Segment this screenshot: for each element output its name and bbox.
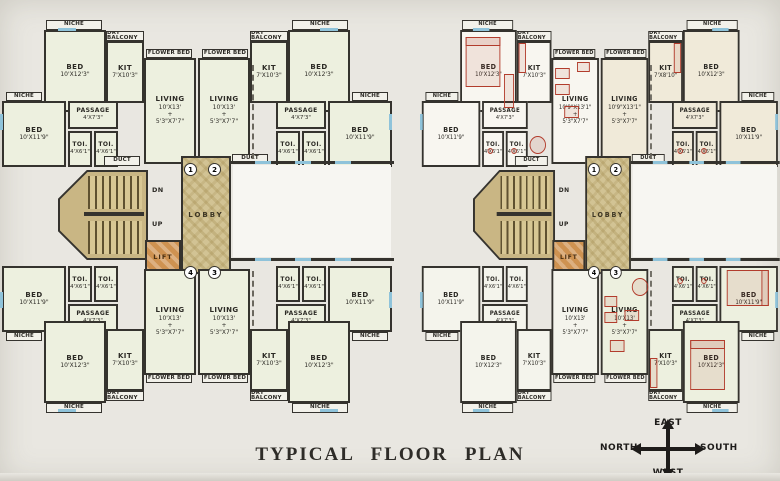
window-marker xyxy=(712,409,728,412)
flat-door-number: 2 xyxy=(610,163,622,176)
kitchen-dashed-partition xyxy=(650,65,652,159)
window-marker xyxy=(320,409,338,412)
kitchen: KIT7'X10'3" xyxy=(250,329,288,391)
living-room: LIVING10'X13' + 5'3"X7'7" xyxy=(551,269,598,375)
dining-table-furniture xyxy=(530,136,546,154)
staircase xyxy=(473,170,555,260)
window-marker xyxy=(0,292,3,308)
flat-door-number: 2 xyxy=(208,163,221,176)
flat-door-number: 3 xyxy=(208,266,221,279)
compass-arrow-east-icon xyxy=(695,443,705,455)
window-marker xyxy=(295,258,311,261)
flower-bed-strip: FLOWER BED xyxy=(604,374,646,383)
kitchen-platform xyxy=(650,358,657,388)
dining-table-furniture xyxy=(632,278,648,296)
dry-balcony-strip: DRY BALCONY xyxy=(517,391,552,401)
stair-up-label: UP xyxy=(152,220,163,228)
toilet: TOI.4'X6'1" xyxy=(506,266,528,302)
compass-south-label: SOUTH xyxy=(700,443,744,453)
toilet-fixture xyxy=(701,148,706,154)
passage: PASSAGE4'X7'3" xyxy=(68,101,118,129)
stair-flight-down xyxy=(88,176,142,209)
toilet: TOI.4'X6'1" xyxy=(302,266,326,302)
stair-up-label: UP xyxy=(559,220,569,228)
passage: PASSAGE4'X7'3" xyxy=(672,101,718,129)
living-room: LIVING10'X13' + 5'3"X7'7" xyxy=(144,269,196,375)
niche-strip: NICHE xyxy=(6,92,42,101)
window-marker xyxy=(473,409,489,412)
niche-strip: NICHE xyxy=(741,92,774,101)
bedroom: BED10'X12'3" xyxy=(683,30,740,112)
flower-bed-strip: FLOWER BED xyxy=(146,374,192,383)
compass: EAST NORTH SOUTH WEST xyxy=(600,416,770,478)
bedroom: BED10'X11'9" xyxy=(719,101,777,167)
left-wing: NICHE BED10'X12'3" DRY BALCONY KIT7'X10'… xyxy=(0,10,394,424)
toilet-fixture xyxy=(701,278,706,284)
window-marker xyxy=(58,28,76,31)
sofa-furniture xyxy=(604,296,617,307)
niche-strip: NICHE xyxy=(352,92,388,101)
kitchen: KIT7'X10'3" xyxy=(250,41,288,103)
kitchen: KIT7'X10'3" xyxy=(106,329,144,391)
bedroom: BED10'X11'9" xyxy=(328,101,392,167)
compass-arrow-west-icon xyxy=(631,443,641,455)
compass-arrow-north-icon xyxy=(662,419,674,429)
toilet: TOI.4'X6'1" xyxy=(482,131,504,167)
dry-balcony-strip: DRY BALCONY xyxy=(517,31,552,41)
window-marker xyxy=(420,114,423,130)
stair-flight-down xyxy=(500,176,549,209)
right-wing: NICHE BED10'X12'3" DRY BALCONY KIT7'X10'… xyxy=(420,10,780,424)
window-marker xyxy=(335,258,351,261)
toilet-fixture xyxy=(677,278,682,284)
flower-bed-strip: FLOWER BED xyxy=(553,374,595,383)
bedroom: BED10'X11'9" xyxy=(422,101,480,167)
toilet-fixture xyxy=(511,148,516,154)
bedroom: BED10'X12'3" xyxy=(460,321,517,403)
toilet: TOI.4'X6'1" xyxy=(482,266,504,302)
sofa-furniture xyxy=(555,84,570,95)
coffee-table-furniture xyxy=(564,106,579,118)
stair-dn-label: DN xyxy=(559,186,570,194)
window-marker xyxy=(653,161,668,164)
window-marker xyxy=(320,28,338,31)
stair-landing-divider xyxy=(84,212,144,216)
kitchen: KIT7'X10'3" xyxy=(517,329,552,391)
stair-flight-up xyxy=(88,221,142,254)
toilet: TOI.4'X6'1" xyxy=(94,266,118,302)
toilet-fixture xyxy=(677,148,682,154)
living-room: LIVING10'9"X13'1" + 5'3"X7'7" xyxy=(601,58,648,164)
bedroom: BED10'X12'3" xyxy=(44,321,106,403)
flower-bed-strip: FLOWER BED xyxy=(553,49,595,58)
bedroom: BED10'X12'3" xyxy=(44,30,106,112)
bed-pillow-furniture xyxy=(761,270,768,306)
flat-door-number: 3 xyxy=(610,266,622,279)
window-marker xyxy=(389,114,392,130)
floor-plan: NICHE BED10'X12'3" DRY BALCONY KIT7'X10'… xyxy=(0,0,780,481)
flat-door-number: 4 xyxy=(184,266,197,279)
niche-strip: NICHE xyxy=(425,92,458,101)
duct: DUCT xyxy=(104,156,140,166)
window-marker xyxy=(295,161,311,164)
kitchen-dashed-partition xyxy=(252,65,254,159)
window-marker xyxy=(689,258,704,261)
staircase xyxy=(58,170,148,260)
toilet-fixture xyxy=(488,148,493,154)
kitchen: KIT7'X10'3" xyxy=(106,41,144,103)
flat-door-number: 4 xyxy=(588,266,600,279)
toilet: TOI.4'X6'1" xyxy=(68,266,92,302)
wardrobe-furniture xyxy=(504,74,514,108)
bed-pillow-furniture xyxy=(690,340,725,349)
flat-door-number: 1 xyxy=(588,163,600,176)
bed-pillow-furniture xyxy=(466,37,501,46)
stair-dn-label: DN xyxy=(152,186,164,194)
window-marker xyxy=(0,114,3,130)
dry-balcony-strip: DRY BALCONY xyxy=(250,31,288,41)
toilet: TOI.4'X6'1" xyxy=(672,266,694,302)
living-room: LIVING10'X13' + 5'3"X7'7" xyxy=(198,269,250,375)
dry-balcony-strip: DRY BALCONY xyxy=(648,31,683,41)
stair-flight-up xyxy=(500,221,549,254)
flower-bed-strip: FLOWER BED xyxy=(202,49,248,58)
window-marker xyxy=(255,258,271,261)
toilet: TOI.4'X6'1" xyxy=(68,131,92,167)
window-marker xyxy=(420,292,423,308)
passage: PASSAGE4'X7'3" xyxy=(276,101,326,129)
window-marker xyxy=(775,292,778,308)
bedroom: BED10'X11'9" xyxy=(2,101,66,167)
stair-landing-divider xyxy=(497,212,552,216)
sofa-furniture xyxy=(625,310,640,321)
window-marker xyxy=(726,258,741,261)
window-marker xyxy=(58,409,76,412)
window-marker xyxy=(335,161,351,164)
sofa-furniture xyxy=(604,312,617,323)
niche-strip: NICHE xyxy=(352,332,388,341)
compass-north-label: NORTH xyxy=(600,443,632,453)
kitchen-platform xyxy=(519,43,526,73)
window-marker xyxy=(726,161,741,164)
window-marker xyxy=(712,28,728,31)
dry-balcony-strip: DRY BALCONY xyxy=(250,391,288,401)
niche-strip: NICHE xyxy=(425,332,458,341)
flat-door-number: 1 xyxy=(184,163,197,176)
living-room: LIVING10'X13' + 5'3"X7'7" xyxy=(198,58,250,164)
niche-strip: NICHE xyxy=(741,332,774,341)
niche-strip: NICHE xyxy=(6,332,42,341)
toilet: TOI.4'X6'1" xyxy=(696,266,718,302)
flower-bed-strip: FLOWER BED xyxy=(146,49,192,58)
open-area xyxy=(233,165,391,257)
window-marker xyxy=(389,292,392,308)
window-marker xyxy=(473,28,489,31)
page-edge-shading xyxy=(0,473,780,481)
duct: DUCT xyxy=(515,156,548,166)
bedroom: BED10'X12'3" xyxy=(288,30,350,112)
kitchen-platform xyxy=(674,43,681,73)
flower-bed-strip: FLOWER BED xyxy=(604,49,646,58)
sofa-furniture xyxy=(577,62,590,72)
dry-balcony-strip: DRY BALCONY xyxy=(648,391,683,401)
toilet: TOI.4'X6'1" xyxy=(276,266,300,302)
sofa-furniture xyxy=(555,68,570,79)
coffee-table-furniture xyxy=(610,340,625,352)
window-marker xyxy=(653,258,668,261)
open-area xyxy=(633,165,777,257)
compass-vertical-bar xyxy=(666,428,670,470)
bedroom: BED10'X12'3" xyxy=(288,321,350,403)
living-room: LIVING10'X13' + 5'3"X7'7" xyxy=(144,58,196,164)
dry-balcony-strip: DRY BALCONY xyxy=(106,391,144,401)
window-marker xyxy=(255,161,271,164)
dry-balcony-strip: DRY BALCONY xyxy=(106,31,144,41)
flower-bed-strip: FLOWER BED xyxy=(202,374,248,383)
window-marker xyxy=(689,161,704,164)
window-marker xyxy=(775,114,778,130)
